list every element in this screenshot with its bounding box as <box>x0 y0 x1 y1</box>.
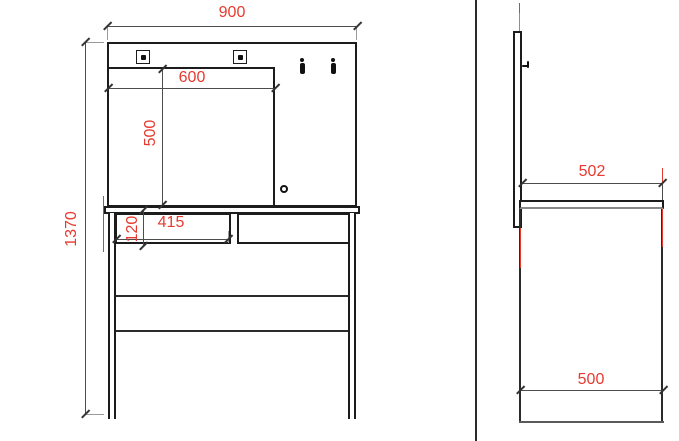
technical-drawing-canvas: 900 600 500 1370 <box>0 0 679 441</box>
dimension-label-415: 415 <box>141 215 201 231</box>
hook-icon <box>298 58 306 76</box>
dimension-label-500-mirror: 500 <box>143 103 159 163</box>
rail-lower <box>116 330 348 332</box>
leg-right <box>348 213 356 419</box>
red-extension-fragment <box>520 228 521 268</box>
hook-side-icon <box>522 61 531 71</box>
side-view: 502 500 <box>477 0 679 441</box>
red-extension-fragment <box>103 196 104 252</box>
dimension-label-500-base: 500 <box>561 372 621 388</box>
hook-icon <box>329 58 337 76</box>
fastener-center-icon <box>141 55 146 60</box>
dimension-label-900: 900 <box>202 5 262 21</box>
dimension-label-502: 502 <box>562 164 622 180</box>
dimension-label-600: 600 <box>162 70 222 86</box>
fastener-center-icon <box>238 55 243 60</box>
extension-fragment <box>519 13 520 31</box>
red-extension-fragment <box>662 209 663 247</box>
knob-icon <box>280 185 288 193</box>
base-bottom-line <box>519 421 664 423</box>
fastener-square-icon <box>136 50 150 64</box>
drawer-right <box>237 213 351 244</box>
dimension-label-120: 120 <box>125 199 141 259</box>
dimension-label-1370: 1370 <box>64 199 80 259</box>
red-extension-fragment <box>519 3 520 13</box>
leg-left <box>108 213 116 419</box>
front-view: 900 600 500 1370 <box>0 0 475 441</box>
tabletop-side <box>519 200 664 209</box>
back-panel-side <box>513 31 522 228</box>
rail-upper <box>116 295 348 297</box>
fastener-square-icon <box>233 50 247 64</box>
